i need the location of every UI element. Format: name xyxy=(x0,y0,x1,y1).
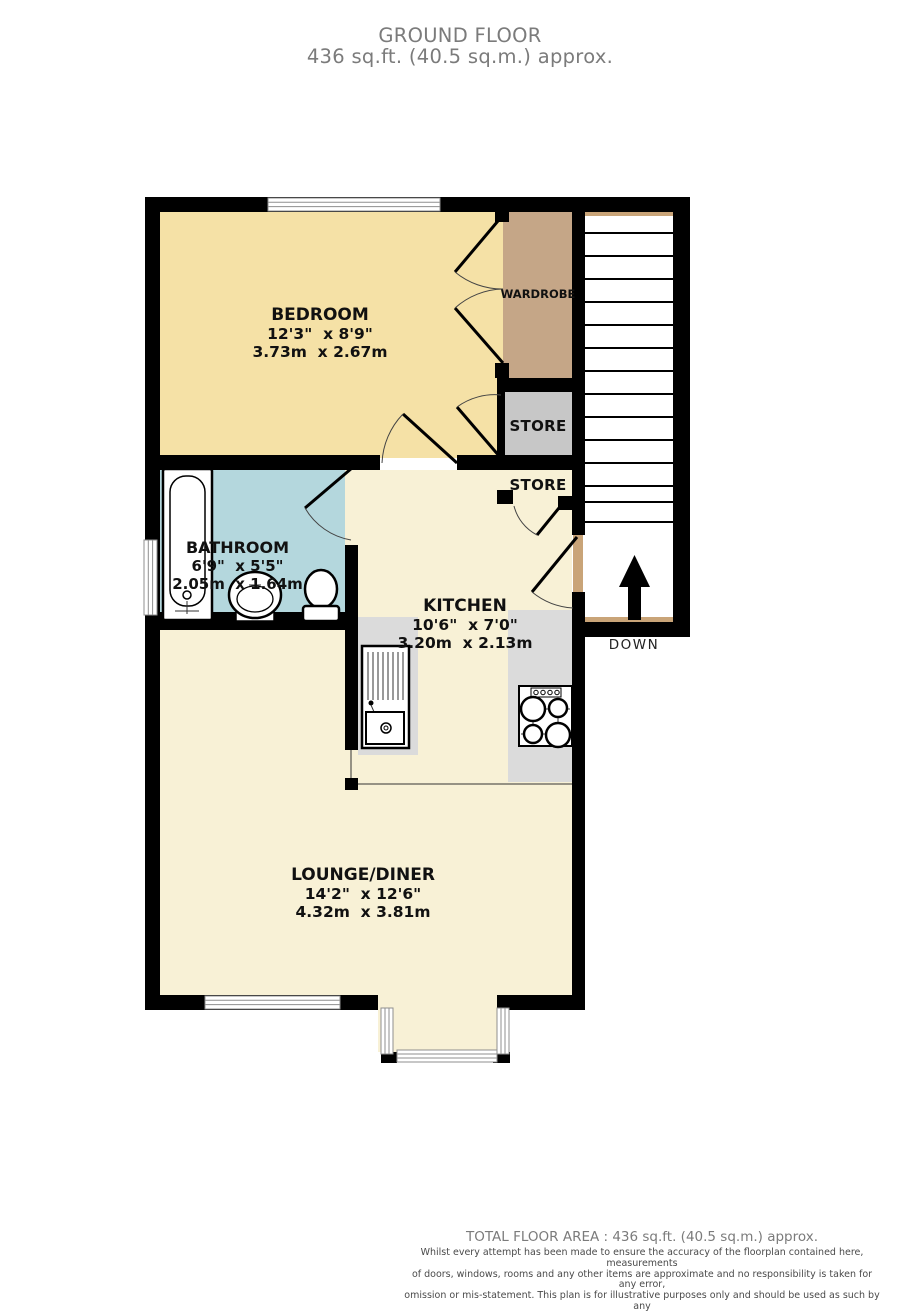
room-name: LOUNGE/DINER xyxy=(220,866,506,885)
wall-divider-node xyxy=(345,778,358,790)
disclaimer-line: omission or mis-statement. This plan is … xyxy=(402,1291,882,1311)
stove-knob-1 xyxy=(534,690,538,694)
stove-knob-4 xyxy=(555,690,559,694)
stove xyxy=(519,686,572,747)
footer: TOTAL FLOOR AREA : 436 sq.ft. (40.5 sq.m… xyxy=(402,1229,882,1311)
bedroom-window xyxy=(268,198,440,211)
bay-window-floor xyxy=(378,995,497,1052)
floorplan-drawing xyxy=(0,0,900,1311)
floorplan-page: GROUND FLOOR 436 sq.ft. (40.5 sq.m.) app… xyxy=(0,0,900,1311)
burner-bottom-right xyxy=(546,723,570,747)
wardrobe-door-stub-bottom xyxy=(495,363,509,378)
wall-bottom-right xyxy=(497,995,585,1010)
bay-window-left xyxy=(381,1008,393,1054)
room-label-bedroom: BEDROOM 12'3" x 8'9" 3.73m x 2.67m xyxy=(160,306,480,361)
burner-bottom-left xyxy=(524,725,542,743)
wall-kitchen-lounge-stub xyxy=(345,630,358,750)
bay-window-front xyxy=(397,1050,497,1062)
wall-under-wardrobe xyxy=(497,378,585,392)
room-dims-imperial: 12'3" x 8'9" xyxy=(160,325,480,343)
room-dims-metric: 2.05m x 1.64m xyxy=(160,575,315,593)
room-dims-imperial: 14'2" x 12'6" xyxy=(220,885,506,903)
room-dims-metric: 4.32m x 3.81m xyxy=(220,903,506,921)
room-label-wardrobe: WARDROBE xyxy=(494,287,582,301)
kitchen-sink xyxy=(362,646,409,748)
wall-hall-right xyxy=(673,197,690,637)
room-label-lounge: LOUNGE/DINER 14'2" x 12'6" 4.32m x 3.81m xyxy=(220,866,506,921)
lounge-window xyxy=(205,996,340,1009)
room-label-kitchen: KITCHEN 10'6" x 7'0" 3.20m x 2.13m xyxy=(380,597,550,652)
total-floor-area: TOTAL FLOOR AREA : 436 sq.ft. (40.5 sq.m… xyxy=(402,1229,882,1245)
wall-bathroom-right xyxy=(345,545,358,612)
wall-bedroom-bottom-b xyxy=(457,455,585,470)
bathroom-window xyxy=(144,540,157,615)
stove-knob-3 xyxy=(548,690,552,694)
wall-right-lower xyxy=(572,592,585,1010)
room-name: KITCHEN xyxy=(380,597,550,616)
kitchen-sink-drain-inner xyxy=(384,726,388,730)
stove-knob-2 xyxy=(541,690,545,694)
room-label-store-upper: STORE xyxy=(503,417,573,435)
room-dims-metric: 3.73m x 2.67m xyxy=(160,343,480,361)
disclaimer-line: Whilst every attempt has been made to en… xyxy=(402,1248,882,1270)
kitchen-tap-knob xyxy=(369,701,374,706)
room-label-bathroom: BATHROOM 6'9" x 5'5" 2.05m x 1.64m xyxy=(160,538,315,593)
down-arrow-shaft xyxy=(628,585,641,620)
room-dims-imperial: 10'6" x 7'0" xyxy=(380,616,550,634)
wall-hall-bottom xyxy=(572,622,690,637)
lounge-floor xyxy=(160,612,345,995)
burner-top-right xyxy=(549,699,567,717)
room-label-store-lower: STORE xyxy=(503,476,573,494)
room-dims-metric: 3.20m x 2.13m xyxy=(380,634,550,652)
bay-window-right xyxy=(497,1008,509,1054)
room-name: BEDROOM xyxy=(160,306,480,325)
disclaimer-line: of doors, windows, rooms and any other i… xyxy=(402,1270,882,1292)
stairs-down-label: DOWN xyxy=(594,637,674,653)
room-dims-imperial: 6'9" x 5'5" xyxy=(160,557,315,575)
wall-stair-left xyxy=(572,197,585,535)
kitchen-door-threshold xyxy=(573,535,583,592)
burner-top-left xyxy=(521,697,545,721)
stair-top-edge xyxy=(585,212,673,216)
room-name: BATHROOM xyxy=(160,538,315,557)
toilet-base xyxy=(303,606,339,621)
